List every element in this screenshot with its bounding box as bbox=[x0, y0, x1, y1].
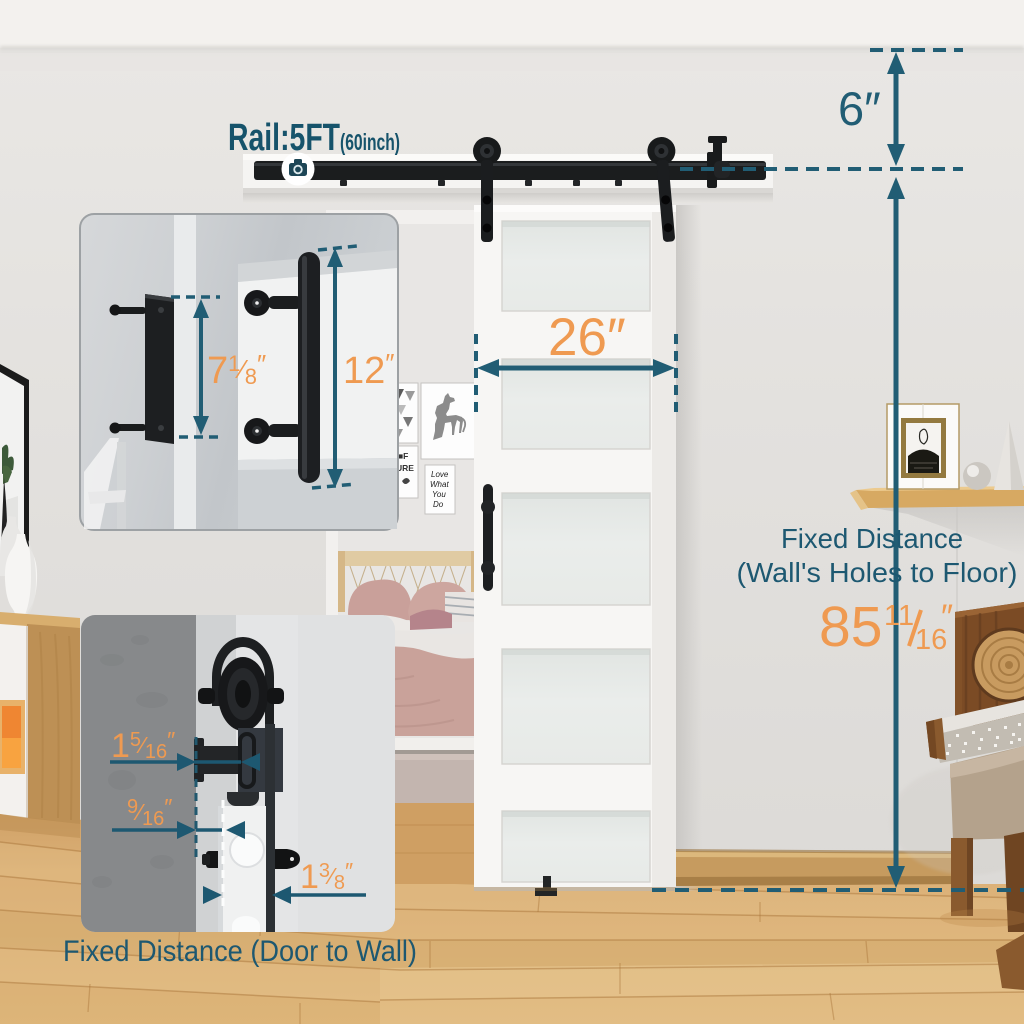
svg-text:What: What bbox=[430, 480, 449, 489]
svg-text:85: 85 bbox=[819, 595, 882, 659]
svg-text:″: ″ bbox=[941, 598, 953, 636]
svg-text:6″: 6″ bbox=[838, 82, 881, 135]
svg-text:26″: 26″ bbox=[548, 308, 626, 367]
svg-text:Love: Love bbox=[431, 470, 449, 479]
svg-text:Rail:5FT: Rail:5FT bbox=[228, 117, 340, 159]
svg-text:Fixed Distance (Door to Wall): Fixed Distance (Door to Wall) bbox=[63, 935, 417, 968]
svg-text:(Wall's Holes to Floor): (Wall's Holes to Floor) bbox=[737, 557, 1018, 588]
svg-text:Do: Do bbox=[433, 500, 444, 509]
svg-text:11: 11 bbox=[884, 600, 914, 632]
svg-text:Fixed Distance: Fixed Distance bbox=[781, 523, 963, 554]
svg-text:■F: ■F bbox=[398, 451, 408, 461]
svg-text:You: You bbox=[432, 490, 446, 499]
svg-text:(60inch): (60inch) bbox=[340, 129, 400, 155]
